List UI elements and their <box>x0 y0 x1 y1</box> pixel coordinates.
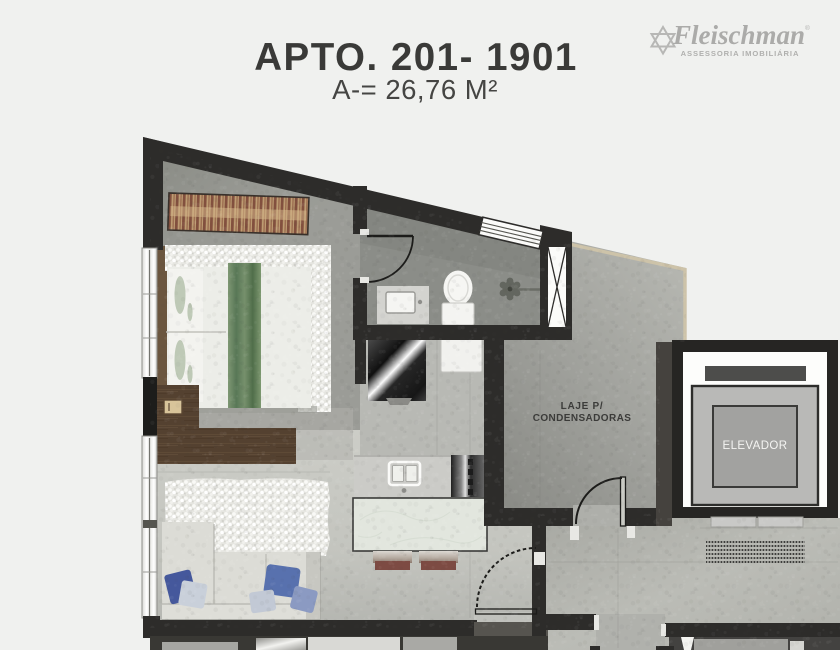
svg-text:APTO. 201- 1901: APTO. 201- 1901 <box>254 36 578 79</box>
svg-text:A-= 26,76 M²: A-= 26,76 M² <box>332 74 498 105</box>
svg-text:ELEVADOR: ELEVADOR <box>723 440 788 452</box>
svg-text:®: ® <box>805 24 810 32</box>
svg-text:Fleischman: Fleischman <box>672 20 805 50</box>
svg-text:ASSESSORIA IMOBILIÁRIA: ASSESSORIA IMOBILIÁRIA <box>681 49 800 58</box>
